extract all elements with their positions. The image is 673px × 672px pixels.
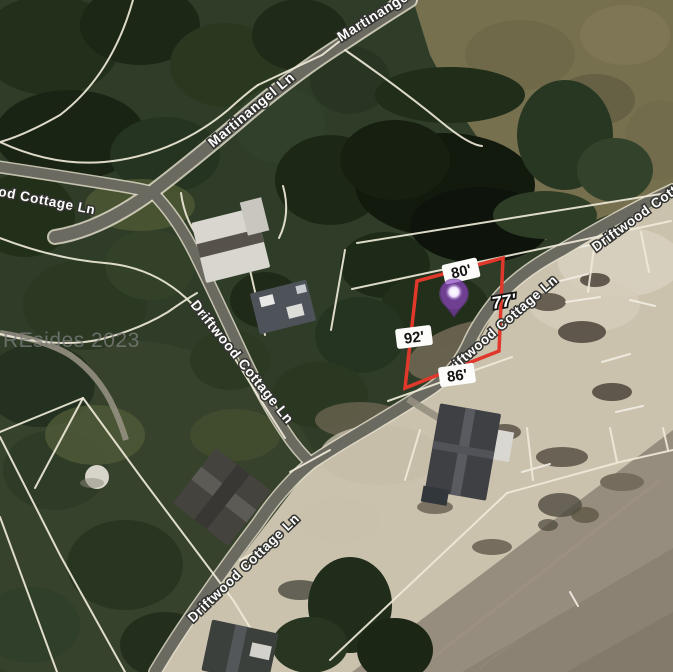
aerial-map-canvas: Martinangel Ln Martinangel Ln Driftwood … — [0, 0, 673, 672]
svg-text:86': 86' — [446, 366, 468, 386]
satellite-map-view: Martinangel Ln Martinangel Ln Driftwood … — [0, 0, 673, 672]
svg-text:92': 92' — [403, 328, 425, 347]
watermark: REsides 2023 — [3, 329, 140, 352]
